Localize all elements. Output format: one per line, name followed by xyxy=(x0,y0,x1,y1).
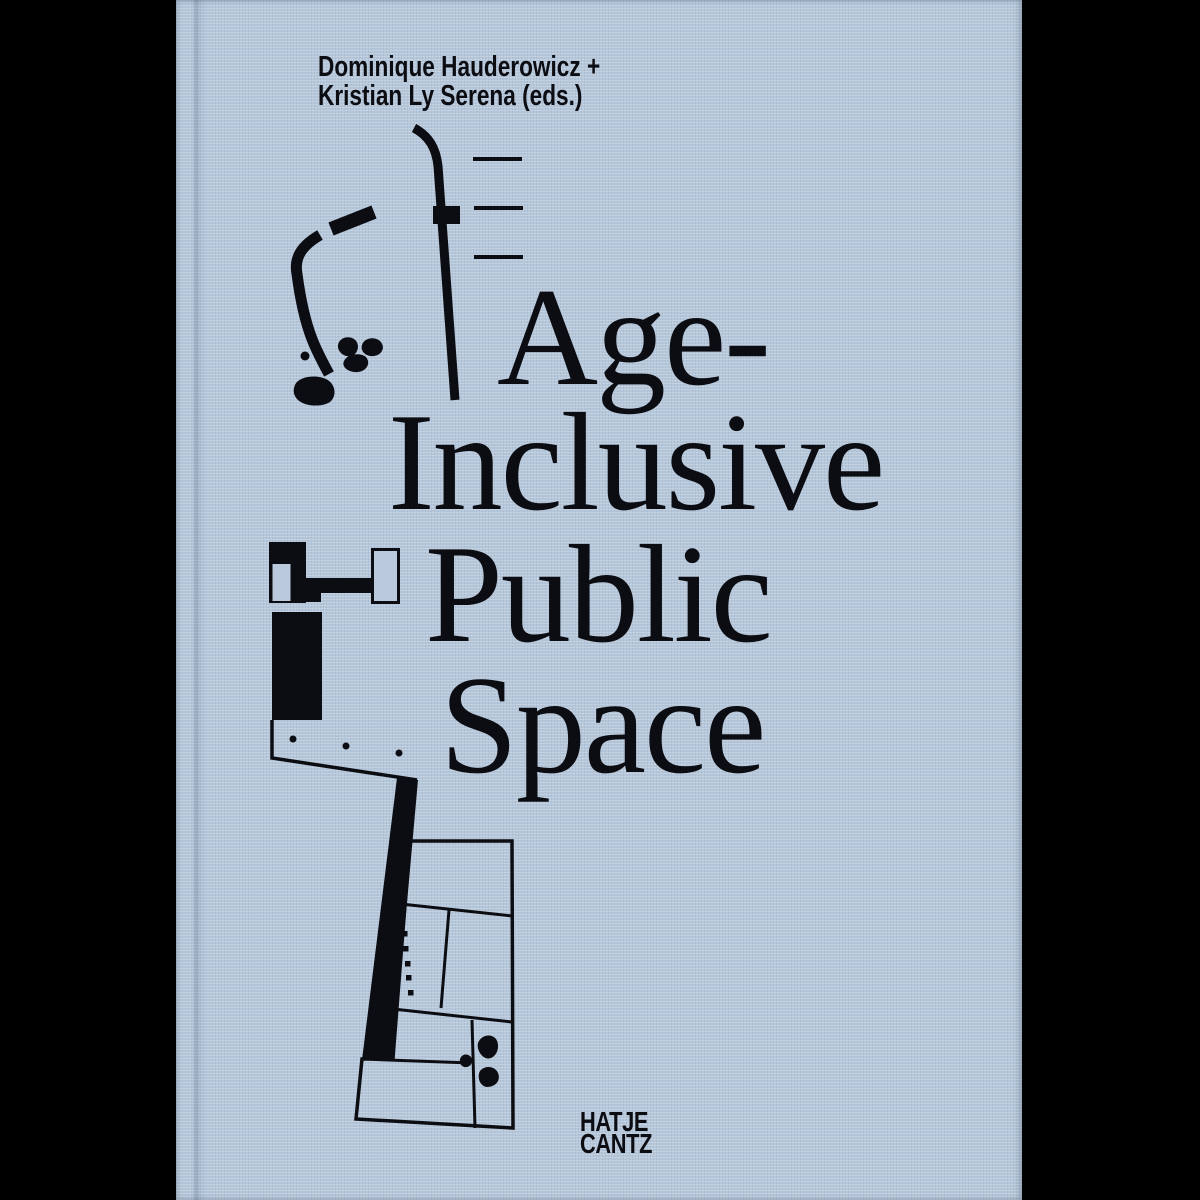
publisher-line-2: CANTZ xyxy=(580,1133,652,1155)
publisher-logo: HATJE CANTZ xyxy=(580,1111,652,1155)
title-line-inclusive: Inclusive xyxy=(388,393,883,533)
author-line-2: Kristian Ly Serena (eds.) xyxy=(318,82,600,111)
author-line-1: Dominique Hauderowicz + xyxy=(318,53,600,82)
book-cover: Dominique Hauderowicz + Kristian Ly Sere… xyxy=(176,0,1022,1200)
book-cover-photo: Dominique Hauderowicz + Kristian Ly Sere… xyxy=(0,0,1200,1200)
title-line-public: Public xyxy=(425,525,771,665)
title-line-space: Space xyxy=(440,656,764,796)
author-names: Dominique Hauderowicz + Kristian Ly Sere… xyxy=(318,53,600,111)
